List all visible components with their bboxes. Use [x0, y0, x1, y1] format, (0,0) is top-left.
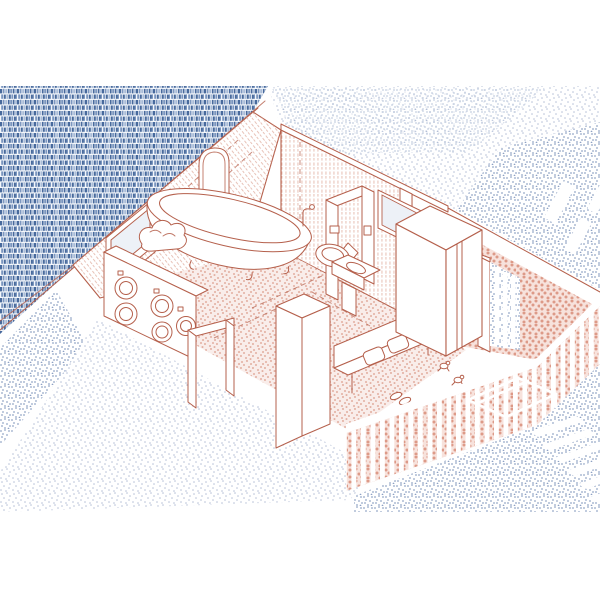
axonometric-scene [0, 0, 600, 600]
cut-wall-pillar [276, 294, 330, 448]
flush-panel [330, 226, 339, 233]
illustration-canvas [0, 0, 600, 600]
top-margin [0, 0, 600, 86]
bottom-margin [0, 512, 600, 600]
wardrobe [396, 206, 482, 356]
light-switch [364, 226, 371, 235]
